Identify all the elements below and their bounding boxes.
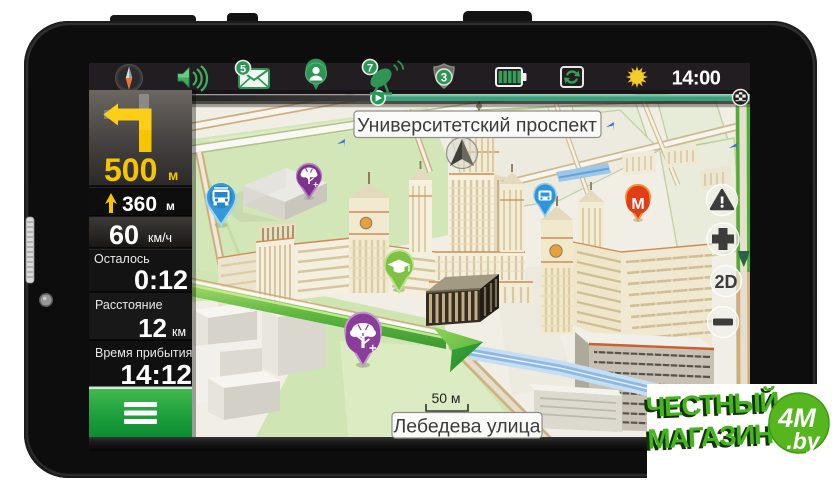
svg-text:Университетский проспект: Университетский проспект (357, 115, 597, 137)
svg-text:км: км (172, 325, 186, 339)
svg-text:ЧЕСТНЫЙ: ЧЕСТНЫЙ (645, 385, 779, 423)
svg-text:60: 60 (109, 220, 139, 250)
svg-text:М: М (631, 196, 644, 213)
svg-text:14:00: 14:00 (672, 68, 721, 90)
svg-text:МАГАЗИН: МАГАЗИН (647, 418, 774, 454)
svg-text:Осталось: Осталось (94, 252, 150, 266)
svg-text:.by: .by (786, 428, 820, 454)
svg-text:0:12: 0:12 (134, 265, 188, 295)
svg-text:14:12: 14:12 (120, 359, 192, 390)
svg-text:12: 12 (138, 313, 167, 343)
svg-text:Лебедева улица: Лебедева улица (393, 416, 540, 438)
svg-text:2D: 2D (714, 272, 737, 292)
svg-text:Расстояние: Расстояние (95, 298, 163, 312)
svg-text:5: 5 (240, 64, 246, 76)
svg-text:Время прибытия: Время прибытия (95, 346, 192, 360)
svg-text:50 м: 50 м (431, 390, 460, 406)
svg-text:м: м (166, 199, 175, 213)
svg-text:км/ч: км/ч (148, 231, 172, 245)
svg-text:360: 360 (122, 193, 157, 216)
svg-text:3: 3 (441, 73, 447, 85)
svg-text:м: м (168, 167, 178, 183)
svg-text:7: 7 (367, 63, 373, 75)
svg-text:500: 500 (104, 152, 157, 188)
